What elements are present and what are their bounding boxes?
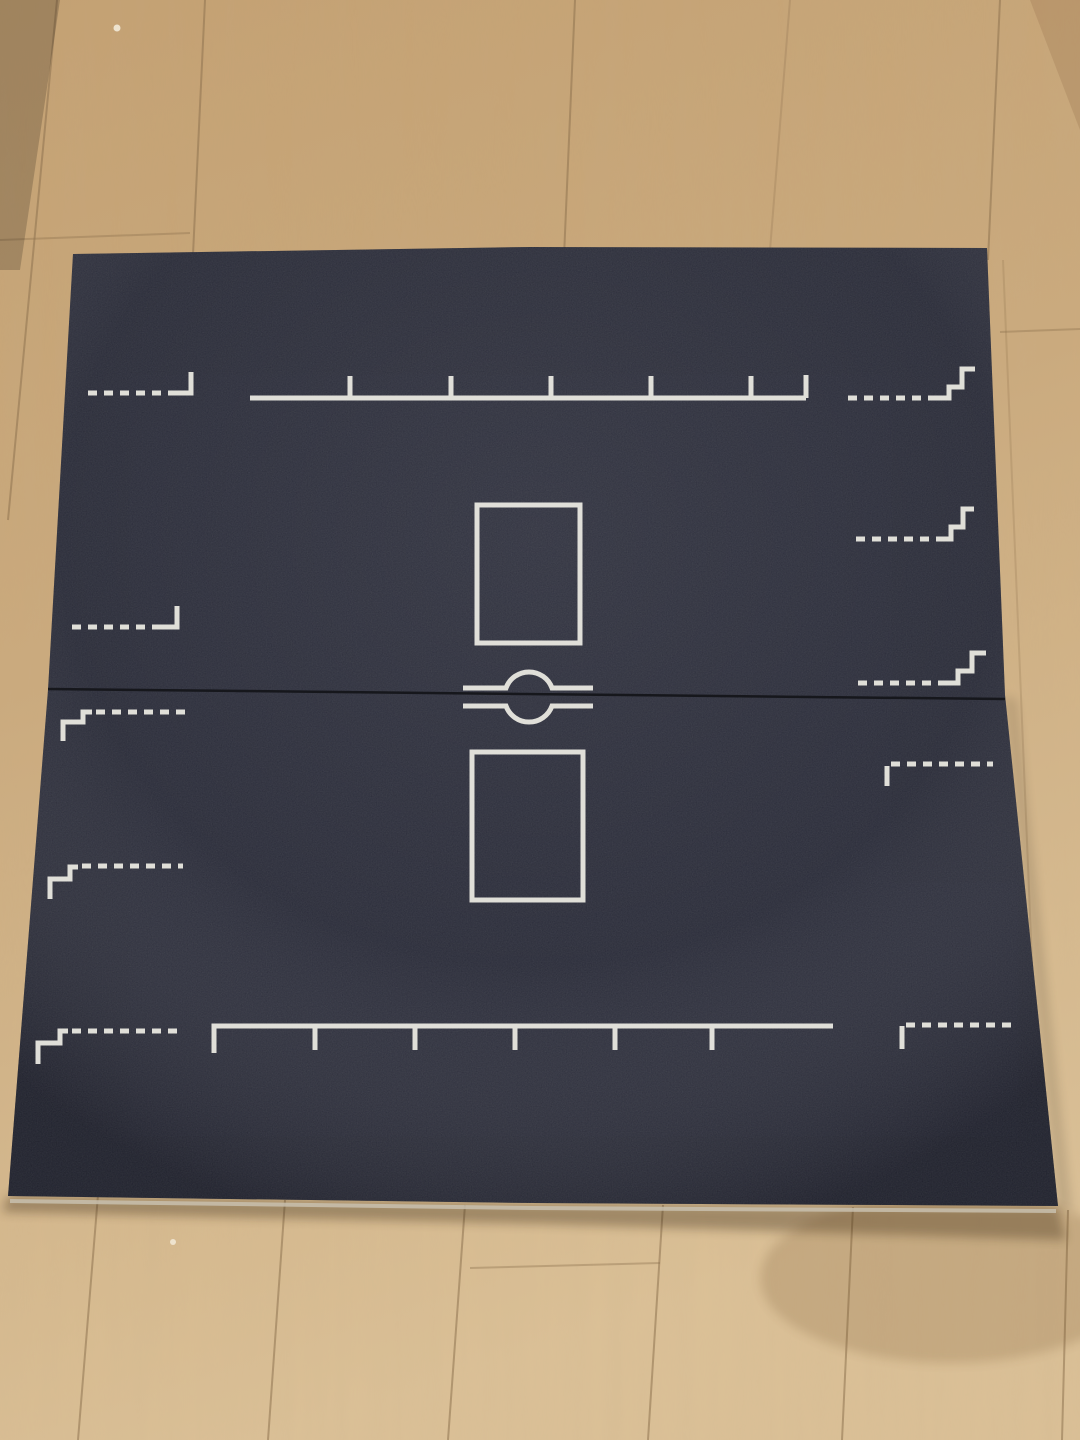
scene-canvas: [0, 0, 1080, 1440]
board-speckle-dark: [0, 240, 1080, 1220]
floor-speck: [170, 1239, 176, 1245]
board-texture: [0, 240, 1080, 1220]
photo-of-game-board: [0, 0, 1080, 1440]
floor-speck: [114, 25, 121, 32]
game-board: [0, 240, 1080, 1220]
